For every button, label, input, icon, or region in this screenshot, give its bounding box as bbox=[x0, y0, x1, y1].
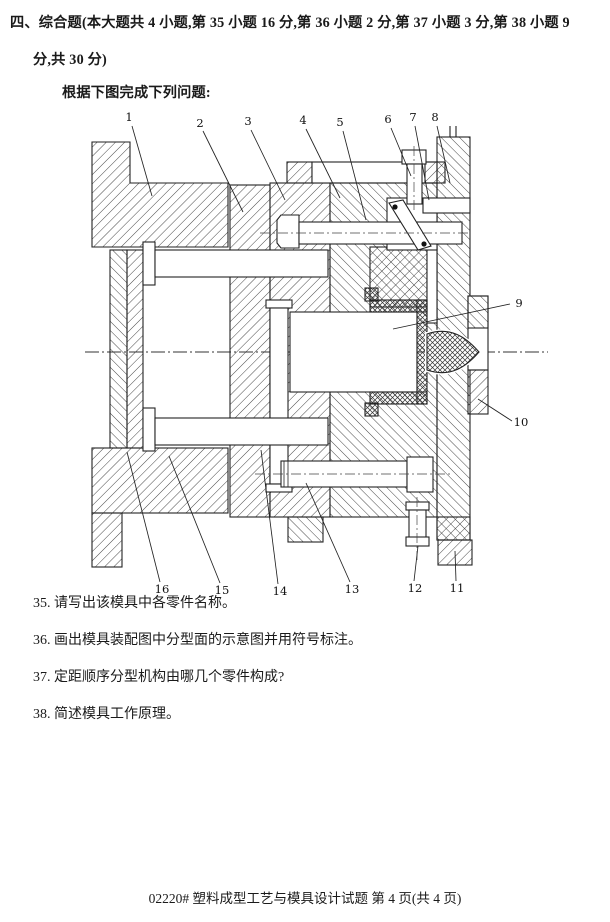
part-label-6: 6 bbox=[384, 112, 391, 126]
nozzle-pin-mark bbox=[450, 126, 456, 137]
part-label-3: 3 bbox=[244, 114, 251, 128]
stop-screw-flange-top bbox=[406, 502, 429, 510]
figure-intro: 根据下图完成下列问题: bbox=[62, 82, 211, 102]
part-label-11: 11 bbox=[450, 581, 465, 595]
moving-plate-tab bbox=[287, 162, 312, 183]
mold-assembly-figure: 1 2 3 4 5 6 7 8 9 10 11 12 13 14 15 16 bbox=[0, 100, 610, 610]
part-label-13: 13 bbox=[345, 582, 360, 596]
guide-sleeve-body bbox=[270, 308, 288, 484]
stop-screw-flange-bottom bbox=[406, 537, 429, 546]
part-label-14: 14 bbox=[273, 584, 288, 598]
molded-part-rim-top bbox=[365, 288, 378, 301]
section-heading-line1: 四、综合题(本大题共 4 小题,第 35 小题 16 分,第 36 小题 2 分… bbox=[10, 12, 570, 32]
shoulder-screw-body bbox=[407, 164, 422, 204]
ejector-pin-bottom-head bbox=[143, 408, 155, 451]
latch-keeper-strip bbox=[423, 198, 470, 213]
moving-clamp-plate-foot bbox=[92, 513, 122, 567]
support-plate bbox=[230, 185, 270, 517]
moving-clamp-plate-bottom bbox=[92, 448, 228, 513]
section-heading-line2: 分,共 30 分) bbox=[33, 49, 107, 69]
locating-block bbox=[468, 370, 488, 414]
exam-page: { "document": { "heading_line1": "四、综合题(… bbox=[0, 0, 610, 922]
part-label-4: 4 bbox=[299, 113, 306, 127]
ejector-plate bbox=[110, 250, 127, 448]
moving-clamp-plate-top bbox=[92, 142, 228, 247]
stop-screw-body bbox=[409, 510, 426, 538]
ejector-retainer-plate bbox=[127, 250, 143, 448]
page-footer: 02220# 塑料成型工艺与模具设计试题 第 4 页(共 4 页) bbox=[0, 887, 610, 907]
ejector-pin-bottom-shaft bbox=[155, 418, 328, 445]
bottom-bolt-head bbox=[407, 457, 433, 492]
limit-bolt-head bbox=[277, 215, 299, 248]
ejector-pin-top-head bbox=[143, 242, 155, 285]
question-37: 37. 定距顺序分型机构由哪几个零件构成? bbox=[33, 666, 284, 686]
part-label-9: 9 bbox=[515, 296, 522, 310]
part-label-5: 5 bbox=[336, 115, 343, 129]
part-label-12: 12 bbox=[408, 581, 423, 595]
question-36: 36. 画出模具装配图中分型面的示意图并用符号标注。 bbox=[33, 629, 362, 649]
core-insert bbox=[290, 312, 417, 392]
part-label-8: 8 bbox=[431, 110, 438, 124]
part-label-10: 10 bbox=[514, 415, 529, 429]
bottom-step-block bbox=[288, 517, 323, 542]
part-label-7: 7 bbox=[409, 110, 416, 124]
latch-pivot-pin bbox=[392, 204, 397, 209]
molded-part-rim-bottom bbox=[365, 403, 378, 416]
ejector-pin-top-shaft bbox=[155, 250, 328, 277]
guide-sleeve-flange-top bbox=[266, 300, 292, 308]
bottom-spacer-block bbox=[437, 517, 470, 540]
question-38: 38. 简述模具工作原理。 bbox=[33, 703, 180, 723]
question-35: 35. 请写出该模具中各零件名称。 bbox=[33, 592, 236, 612]
parting-gap bbox=[427, 247, 437, 323]
latch-catch-pin bbox=[421, 241, 426, 246]
part-label-2: 2 bbox=[196, 116, 203, 130]
part-label-1: 1 bbox=[125, 110, 132, 124]
